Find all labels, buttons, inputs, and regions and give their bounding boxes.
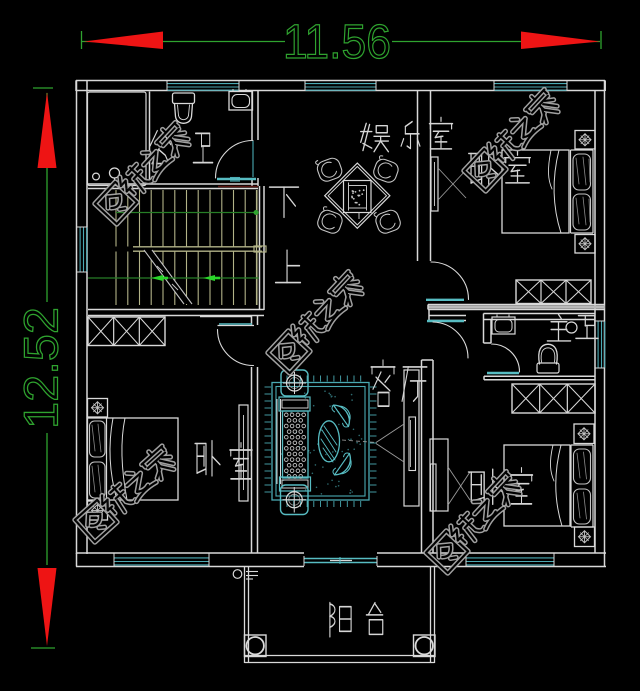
svg-text:12.52: 12.52 (16, 307, 69, 429)
svg-text:11.56: 11.56 (283, 16, 391, 69)
